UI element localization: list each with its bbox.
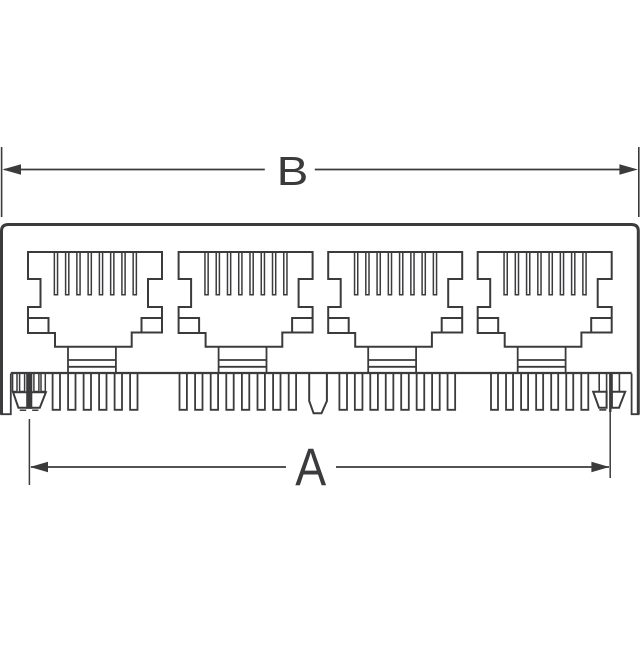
svg-text:A: A (295, 437, 327, 497)
svg-text:B: B (277, 149, 309, 194)
